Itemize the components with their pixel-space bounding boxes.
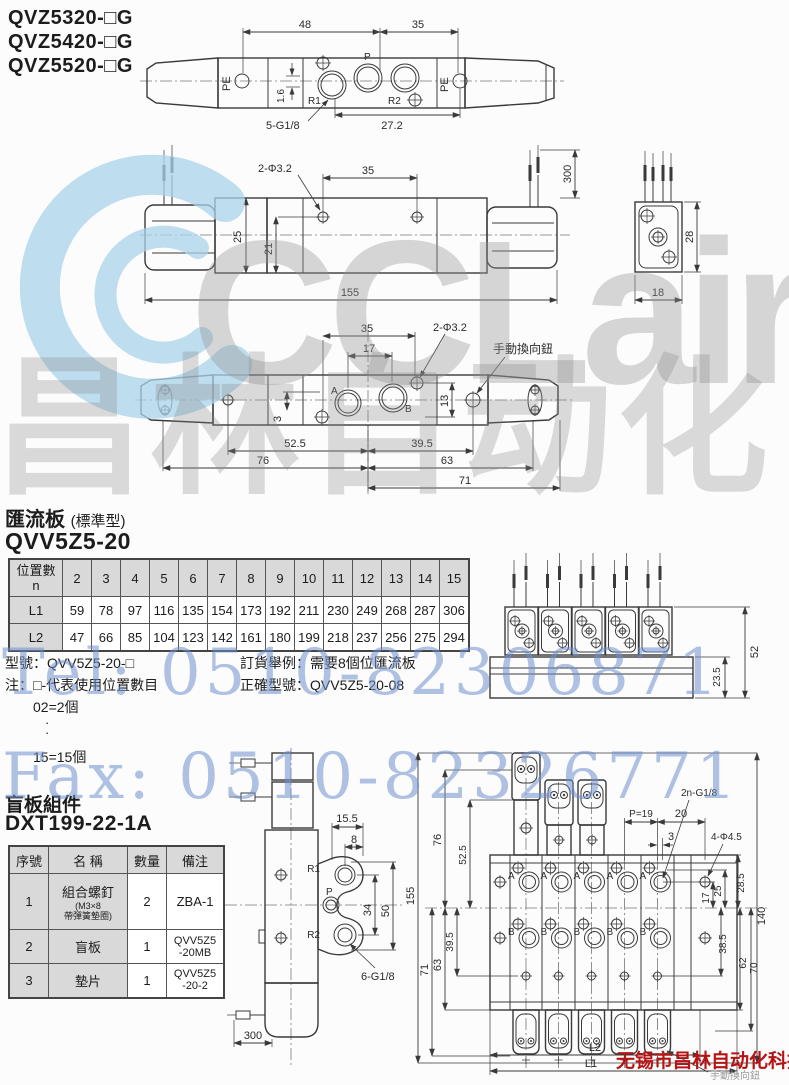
table-cell: 268 [382, 597, 411, 624]
dim-70: 70 [749, 962, 760, 974]
table-cell: 4 [121, 559, 150, 597]
port-column: A B [508, 861, 539, 1064]
row-label-l1: L1 [9, 597, 63, 624]
header-no: 序號 [9, 846, 49, 874]
port-b-label: B [574, 927, 581, 938]
cell-name: 墊片 [49, 964, 128, 998]
dim-71: 71 [419, 964, 431, 976]
table-cell: 123 [179, 624, 208, 652]
dim-300: 300 [562, 165, 574, 183]
port-column: A B [541, 861, 572, 1064]
note-order-model: 正確型號：QVV5Z5-20-08 [240, 674, 470, 696]
table-cell: 154 [208, 597, 237, 624]
table-cell: 10 [295, 559, 324, 597]
model-number: QVZ5320-□G [8, 6, 133, 30]
port-b: B [405, 404, 412, 415]
dim-38-5: 38.5 [718, 934, 729, 954]
dim-17: 17 [701, 892, 712, 904]
drawing-valve-side-view: 48 35 PE R1 P R2 PE 1.6 5-G1/8 27.2 [140, 15, 570, 145]
dim-20: 20 [675, 808, 687, 820]
cell-remark: QVV5Z5 -20-2 [167, 964, 225, 998]
table-row-l1: L1 5978971161351541731922112302492682873… [9, 597, 469, 624]
dim-8: 8 [351, 834, 357, 846]
table-cell: 85 [121, 624, 150, 652]
port-a-label: A [574, 871, 581, 882]
port-pe-right: PE [439, 77, 451, 92]
dim-l2: L2 [589, 1042, 601, 1054]
table-cell: 294 [440, 624, 470, 652]
wire-pin-2 [229, 793, 272, 801]
dim-15-5: 15.5 [336, 813, 357, 825]
port-p: P [364, 52, 371, 63]
cell-name: 盲板 [49, 930, 128, 964]
table-cell: 256 [382, 624, 411, 652]
table-cell: 275 [411, 624, 440, 652]
port-b-label: B [607, 927, 614, 938]
note-dots: · · [45, 718, 235, 738]
dim-3: 3 [272, 416, 284, 422]
valve-end-view: 28 18 [635, 151, 701, 304]
table-header-row: 位置數 n 23456789101112131415 [9, 559, 469, 597]
header-remark: 備注 [167, 846, 225, 874]
table-cell: 5 [150, 559, 179, 597]
model-number: QVZ5520-□G [8, 54, 133, 78]
dim-155: 155 [341, 287, 359, 299]
table-cell: 230 [324, 597, 353, 624]
dim-thread-2ng18: 2n-G1/8 [681, 788, 718, 799]
port-a-label: A [640, 871, 647, 882]
table-cell: 2 [63, 559, 92, 597]
port-column: A B [574, 861, 605, 1064]
dim-3: 3 [668, 831, 674, 843]
cell-name: 組合螺釘 (M3×8 帶彈簧墊圈) [49, 874, 128, 930]
table-cell: 3 [92, 559, 121, 597]
table-cell: 161 [237, 624, 266, 652]
dim-52: 52 [749, 646, 761, 658]
dim-34: 34 [362, 904, 374, 916]
port-b-label: B [640, 927, 647, 938]
table-cell: 180 [266, 624, 295, 652]
dim-48: 48 [299, 19, 311, 31]
table-cell: 116 [150, 597, 179, 624]
dim-63: 63 [441, 455, 453, 467]
table-cell: 287 [411, 597, 440, 624]
datasheet-page: QVZ5320-□G QVZ5420-□G QVZ5520-□G [0, 0, 789, 1085]
dim-76: 76 [432, 834, 444, 846]
cell-qty: 1 [128, 964, 167, 998]
port-b-label: B [508, 927, 515, 938]
dim-25: 25 [232, 231, 244, 243]
dim-71: 71 [459, 475, 471, 487]
dim-pitch: P=19 [629, 809, 653, 820]
dim-140: 140 [756, 907, 768, 925]
table-cell: 97 [121, 597, 150, 624]
table-cell: 47 [63, 624, 92, 652]
port-a-label: A [541, 871, 548, 882]
dim-52-5: 52.5 [458, 845, 469, 865]
table-corner-cell: 位置數 n [9, 559, 63, 597]
drawing-manifold-front-view: 52 23.5 [478, 550, 789, 720]
dim-1-6: 1.6 [276, 89, 287, 103]
dim-thread-6g18: 6-G1/8 [361, 971, 395, 983]
cell-no: 3 [9, 964, 49, 998]
table-cell: 11 [324, 559, 353, 597]
port-p: P [326, 887, 333, 898]
table-cell: 249 [353, 597, 382, 624]
port-column: A B [640, 861, 671, 1064]
table-cell: 6 [179, 559, 208, 597]
dim-25: 25 [713, 885, 724, 897]
dim-13: 13 [439, 395, 451, 407]
dim-holes: 2-Φ3.2 [258, 163, 292, 175]
dim-17: 17 [363, 343, 375, 355]
dim-63: 63 [432, 959, 444, 971]
port-r2: R2 [388, 96, 401, 107]
table-cell: 199 [295, 624, 324, 652]
table-cell: 13 [382, 559, 411, 597]
dim-76: 76 [257, 455, 269, 467]
model-list: QVZ5320-□G QVZ5420-□G QVZ5520-□G [8, 6, 133, 78]
table-cell: 173 [237, 597, 266, 624]
valve-top-3 [578, 780, 606, 855]
port-pe-left: PE [221, 76, 233, 91]
port-b-label: B [541, 927, 548, 938]
manifold-valves [505, 553, 672, 655]
dim-21: 21 [263, 243, 275, 255]
corner-line1: 位置數 [11, 563, 61, 578]
dim-39-5: 39.5 [445, 932, 456, 952]
table-cell: 78 [92, 597, 121, 624]
port-column: A B [607, 861, 638, 1064]
table-row-l2: L2 4766851041231421611801992182372562752… [9, 624, 469, 652]
table-cell: 12 [353, 559, 382, 597]
table-cell: 104 [150, 624, 179, 652]
note-eq2: 15=15個 [33, 746, 235, 768]
parts-row-2: 2 盲板 1 QVV5Z5 -20MB [9, 930, 224, 964]
parts-row-1: 1 組合螺釘 (M3×8 帶彈簧墊圈) 2 ZBA-1 [9, 874, 224, 930]
port-a: A [331, 386, 338, 397]
table-cell: 142 [208, 624, 237, 652]
port-r1: R1 [308, 96, 321, 107]
dim-27-2: 27.2 [381, 120, 402, 132]
dim-28: 28 [684, 231, 696, 243]
table-cell: 66 [92, 624, 121, 652]
note-eq1: 02=2個 [33, 696, 235, 718]
drawing-manifold-assembly: A B A B [405, 748, 789, 1085]
dim-l1: L1 [585, 1058, 597, 1070]
drawing-valve-top-view: 35 2-Φ3.2 25 21 155 300 [140, 143, 789, 328]
wires-right [530, 145, 538, 207]
wires-left [164, 145, 172, 205]
dim-62: 62 [738, 957, 749, 969]
cell-qty: 1 [128, 930, 167, 964]
corner-line2: n [11, 578, 61, 593]
wire-pin-3 [227, 1011, 265, 1019]
table-cell: 9 [266, 559, 295, 597]
label-manual-override: 手動換向鈕 [493, 341, 553, 356]
cell-no: 1 [9, 874, 49, 930]
header-qty: 數量 [128, 846, 167, 874]
row-label-l2: L2 [9, 624, 63, 652]
dim-35: 35 [362, 165, 374, 177]
note-note: 注：□-代表使用位置數目 [5, 674, 235, 696]
parts-row-3: 3 墊片 1 QVV5Z5 -20-2 [9, 964, 224, 998]
table-cell: 237 [353, 624, 382, 652]
table-cell: 218 [324, 624, 353, 652]
table-cell: 14 [411, 559, 440, 597]
table-cell: 211 [295, 597, 324, 624]
dim-holes-4phi45: 4-Φ4.5 [711, 832, 742, 843]
dim-28-5: 28.5 [736, 873, 747, 893]
dim-holes: 2-Φ3.2 [433, 322, 467, 334]
table-cell: 8 [237, 559, 266, 597]
order-notes-left: 型號：QVV5Z5-20-□ 注：□-代表使用位置數目 02=2個 · · 15… [5, 652, 235, 768]
dim-52-5: 52.5 [284, 438, 305, 450]
note-model: 型號：QVV5Z5-20-□ [5, 652, 235, 674]
cell-no: 2 [9, 930, 49, 964]
port-a-label: A [607, 871, 614, 882]
dim-50: 50 [380, 905, 392, 917]
drawing-valve-bottom-view: A B 35 17 2-Φ3.2 手動換向鈕 3 13 [135, 322, 585, 502]
note-order-example: 訂貨舉例：需要8個位匯流板 [240, 652, 470, 674]
content-layer: QVZ5320-□G QVZ5420-□G QVZ5520-□G [0, 0, 789, 1085]
port-a-label: A [508, 871, 515, 882]
dim-18: 18 [652, 287, 664, 299]
parts-header-row: 序號 名 稱 數量 備注 [9, 846, 224, 874]
port-r1: R1 [307, 864, 320, 875]
manifold-dimension-table: 位置數 n 23456789101112131415 L1 5978971161… [8, 558, 470, 652]
table-cell: 135 [179, 597, 208, 624]
dim-39-5: 39.5 [411, 438, 432, 450]
table-cell: 306 [440, 597, 470, 624]
port-r2: R2 [307, 930, 320, 941]
company-name: 无锡市昌林自动化科技 [616, 1046, 789, 1073]
table-cell: 59 [63, 597, 92, 624]
dim-300: 300 [244, 1030, 262, 1042]
dim-thread-5g18: 5-G1/8 [266, 120, 300, 132]
blind-plate-model: DXT199-22-1A [5, 812, 152, 836]
header-name: 名 稱 [49, 846, 128, 874]
model-number: QVZ5420-□G [8, 30, 133, 54]
table-cell: 7 [208, 559, 237, 597]
valve-top-2 [545, 780, 573, 855]
cell-remark: QVV5Z5 -20MB [167, 930, 225, 964]
order-notes-right: 訂貨舉例：需要8個位匯流板 正確型號：QVV5Z5-20-08 [240, 652, 470, 696]
wire-pin-1 [229, 759, 272, 767]
table-cell: 192 [266, 597, 295, 624]
table-cell: 15 [440, 559, 470, 597]
cell-remark: ZBA-1 [167, 874, 225, 930]
dim-23-5: 23.5 [712, 667, 723, 687]
dim-35: 35 [361, 323, 373, 335]
blind-plate-parts-table: 序號 名 稱 數量 備注 1 組合螺釘 (M3×8 帶彈簧墊圈) 2 ZBA-1… [8, 845, 225, 999]
dim-35: 35 [412, 19, 424, 31]
dim-155: 155 [405, 887, 417, 905]
manifold-model: QVV5Z5-20 [5, 528, 131, 555]
cell-qty: 2 [128, 874, 167, 930]
